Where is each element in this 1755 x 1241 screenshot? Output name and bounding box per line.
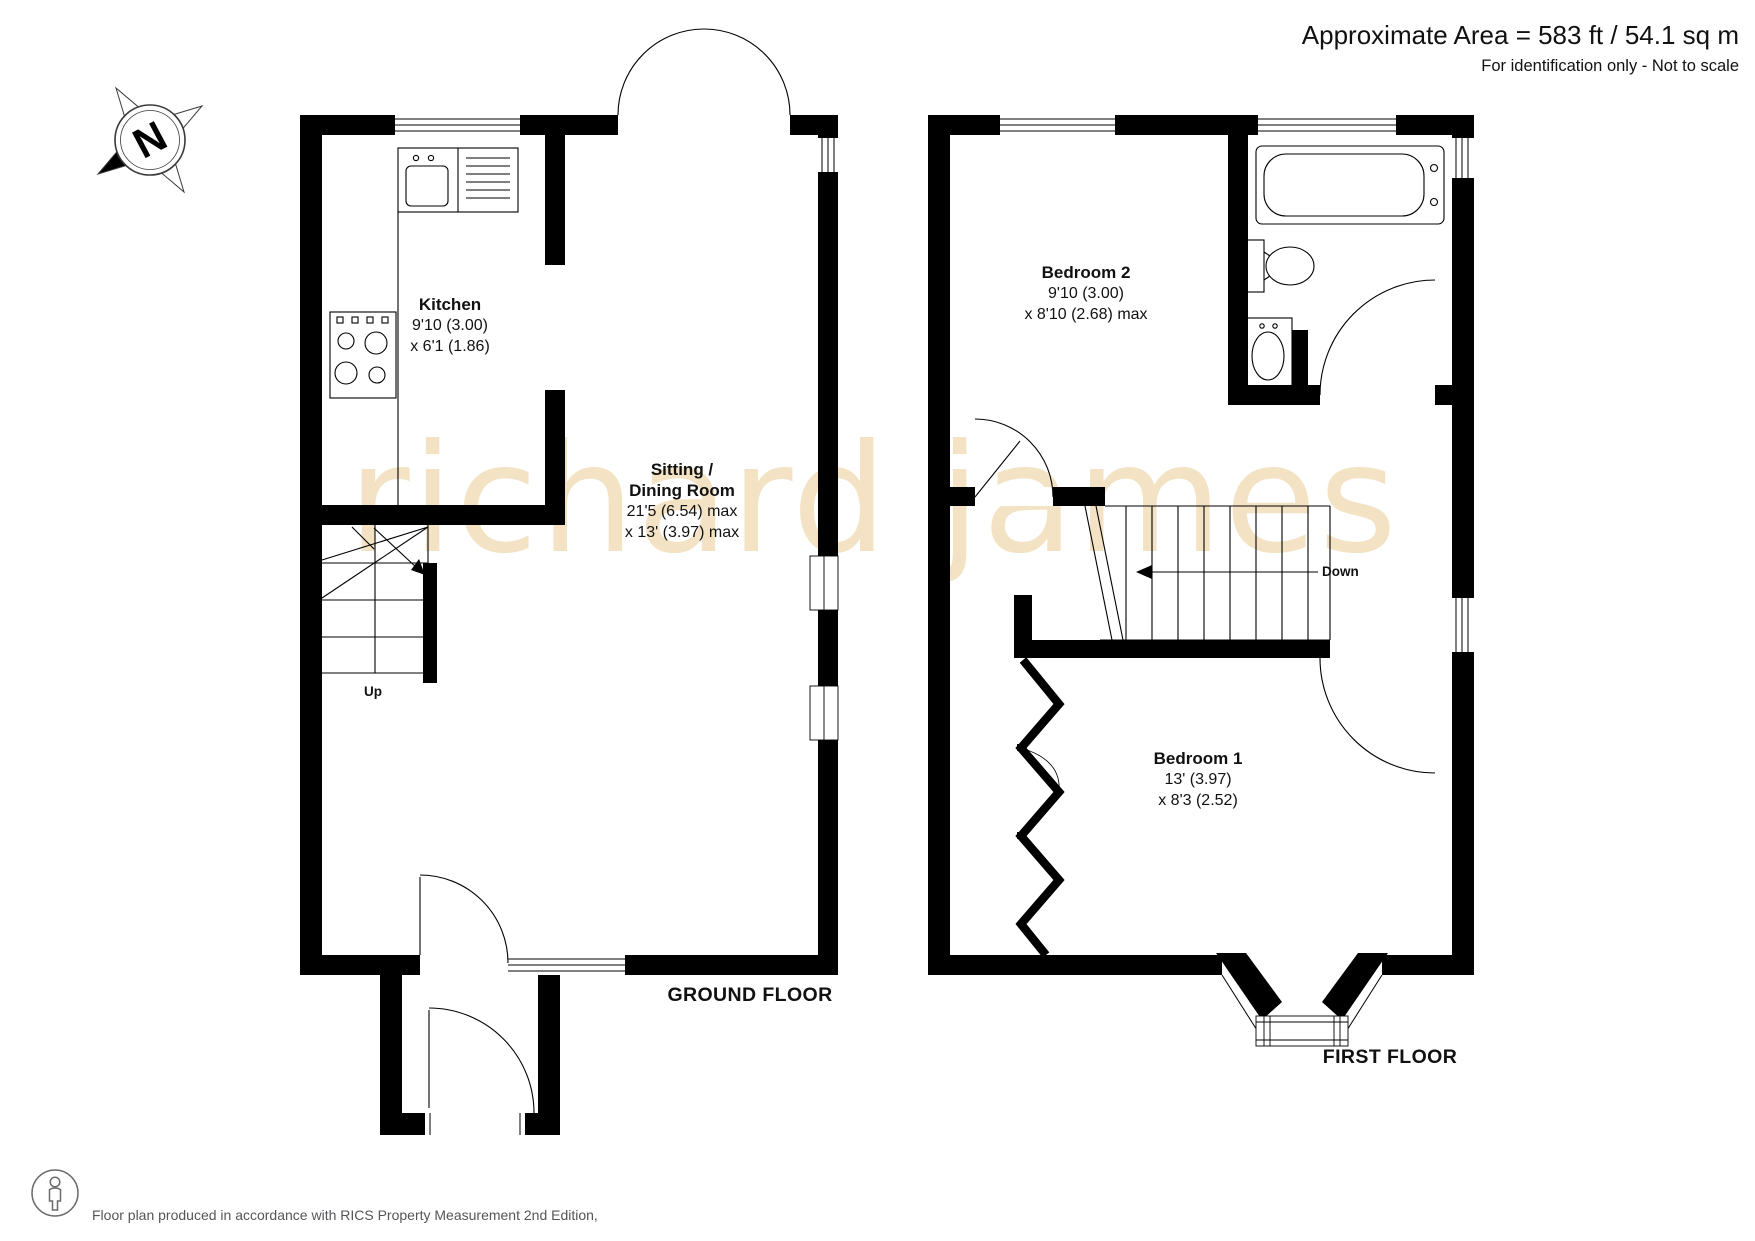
ground-floor-plan bbox=[300, 29, 838, 1135]
identification-note: For identification only - Not to scale bbox=[1302, 57, 1739, 76]
first-floor-title: FIRST FLOOR bbox=[1323, 1046, 1457, 1069]
kitchen-label: Kitchen 9'10 (3.00) x 6'1 (1.86) bbox=[410, 294, 490, 357]
bedroom1-dim-1: 13' (3.97) bbox=[1154, 769, 1243, 790]
bathroom-sink bbox=[1244, 318, 1292, 392]
sitting-dining-label: Sitting / Dining Room 21'5 (6.54) max x … bbox=[625, 459, 739, 543]
bedroom2-dim-1: 9'10 (3.00) bbox=[1024, 283, 1147, 304]
sitting-name-line2: Dining Room bbox=[625, 480, 739, 501]
stairs-first bbox=[1085, 506, 1330, 640]
footer-disclaimer: Floor plan produced in accordance with R… bbox=[92, 1148, 730, 1241]
bedroom1-name: Bedroom 1 bbox=[1154, 748, 1243, 769]
french-doors bbox=[618, 29, 790, 115]
person-icon bbox=[32, 1170, 78, 1216]
first-floor-plan bbox=[928, 115, 1474, 1046]
stairs-up-label: Up bbox=[364, 684, 382, 699]
kitchen-dim-2: x 6'1 (1.86) bbox=[410, 336, 490, 357]
stairs-up-arrowhead bbox=[411, 559, 425, 575]
ground-floor-title: GROUND FLOOR bbox=[667, 984, 832, 1007]
approximate-area: Approximate Area = 583 ft / 54.1 sq m bbox=[1302, 20, 1739, 51]
toilet bbox=[1240, 240, 1314, 292]
bedroom2-dim-2: x 8'10 (2.68) max bbox=[1024, 304, 1147, 325]
ground-floor-windows bbox=[395, 115, 838, 1135]
bedroom1-dim-2: x 8'3 (2.52) bbox=[1154, 790, 1243, 811]
kitchen-name: Kitchen bbox=[410, 294, 490, 315]
stairs-down-label: Down bbox=[1322, 564, 1359, 579]
footer-line-1: Floor plan produced in accordance with R… bbox=[92, 1202, 730, 1229]
bedroom1-label: Bedroom 1 13' (3.97) x 8'3 (2.52) bbox=[1154, 748, 1243, 811]
ground-floor-doors bbox=[420, 875, 534, 1113]
floorplan-drawing: N bbox=[0, 0, 1755, 1241]
header: Approximate Area = 583 ft / 54.1 sq m Fo… bbox=[1302, 20, 1739, 76]
floorplan-page: richard james N bbox=[0, 0, 1755, 1241]
stairs-down-arrowhead bbox=[1136, 565, 1152, 579]
stairs-ground bbox=[322, 525, 428, 678]
sitting-name-line1: Sitting / bbox=[625, 459, 739, 480]
sitting-dim-2: x 13' (3.97) max bbox=[625, 522, 739, 543]
kitchen-dim-1: 9'10 (3.00) bbox=[410, 315, 490, 336]
first-floor-windows bbox=[975, 115, 1474, 975]
sitting-dim-1: 21'5 (6.54) max bbox=[625, 501, 739, 522]
first-floor-doors bbox=[975, 280, 1435, 773]
bathtub bbox=[1256, 146, 1444, 224]
bedroom2-name: Bedroom 2 bbox=[1024, 262, 1147, 283]
cooker bbox=[330, 312, 396, 398]
compass-icon: N bbox=[98, 88, 202, 192]
kitchen-sink-unit bbox=[398, 148, 518, 212]
bedroom2-label: Bedroom 2 9'10 (3.00) x 8'10 (2.68) max bbox=[1024, 262, 1147, 325]
eaves-zigzag bbox=[1017, 660, 1059, 955]
